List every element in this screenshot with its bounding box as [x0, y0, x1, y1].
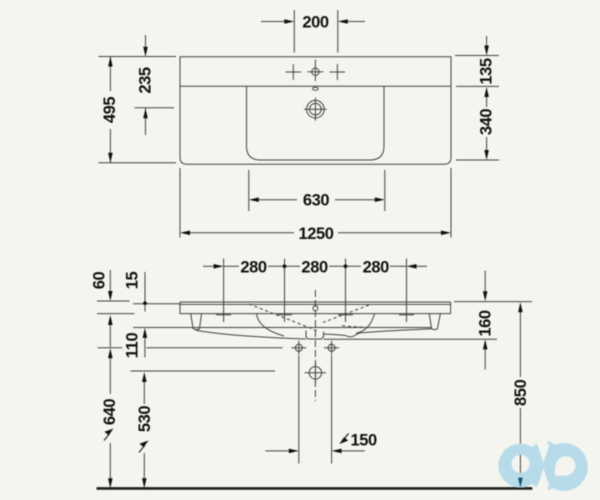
svg-text:1250: 1250	[298, 225, 333, 243]
svg-text:235: 235	[137, 67, 155, 94]
svg-text:135: 135	[478, 58, 496, 85]
svg-text:340: 340	[478, 109, 496, 136]
svg-text:60: 60	[91, 272, 109, 290]
svg-text:160: 160	[477, 310, 495, 337]
svg-text:280: 280	[240, 258, 267, 276]
svg-text:15: 15	[124, 272, 142, 290]
svg-text:630: 630	[303, 192, 330, 210]
svg-text:280: 280	[301, 258, 328, 276]
svg-text:150: 150	[351, 432, 378, 450]
svg-text:280: 280	[363, 258, 390, 276]
svg-text:495: 495	[101, 97, 119, 124]
svg-text:640: 640	[101, 399, 119, 426]
svg-text:110: 110	[124, 333, 142, 359]
svg-text:530: 530	[136, 406, 154, 433]
svg-text:850: 850	[512, 379, 530, 406]
svg-text:200: 200	[302, 14, 329, 32]
